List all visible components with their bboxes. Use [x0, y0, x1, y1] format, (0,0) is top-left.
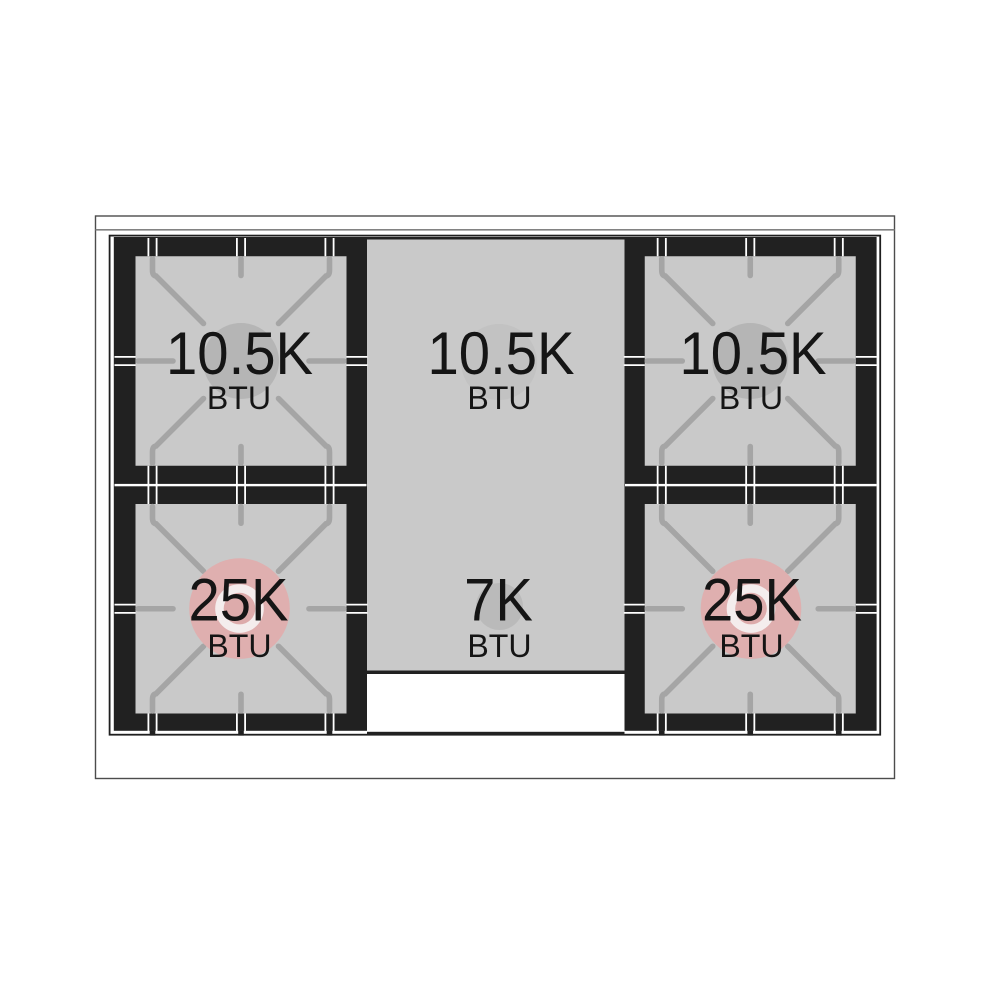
svg-text:10.5K: 10.5K	[166, 320, 313, 387]
svg-text:BTU: BTU	[719, 628, 783, 664]
svg-text:25K: 25K	[702, 566, 802, 633]
svg-text:10.5K: 10.5K	[427, 320, 574, 387]
svg-text:BTU: BTU	[207, 380, 271, 416]
svg-text:25K: 25K	[188, 566, 288, 633]
svg-text:10.5K: 10.5K	[679, 320, 826, 387]
svg-text:BTU: BTU	[719, 380, 783, 416]
svg-text:BTU: BTU	[467, 628, 531, 664]
svg-text:BTU: BTU	[467, 380, 531, 416]
svg-text:BTU: BTU	[207, 628, 271, 664]
svg-text:7K: 7K	[464, 566, 533, 633]
